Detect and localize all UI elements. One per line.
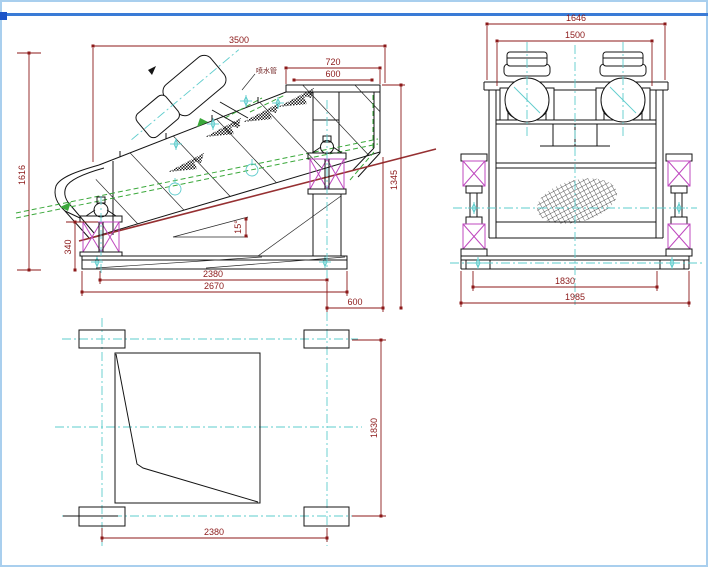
dim-top-width: 720 xyxy=(325,57,340,67)
cad-drawing-canvas: 15° 喷水管 3500 1616 340 720 600 1345 xyxy=(0,0,708,567)
motor-left xyxy=(500,42,554,136)
dim-base-span: 2380 xyxy=(203,269,223,279)
dim-front-height: 340 xyxy=(63,239,73,254)
motor-right xyxy=(596,42,650,136)
spray-pipe-callout: 喷水管 xyxy=(242,66,277,90)
spray-piping xyxy=(16,95,378,218)
dim-plan-length: 2380 xyxy=(204,527,224,537)
dim-base-width: 1985 xyxy=(565,292,585,302)
spray-pipe-label: 喷水管 xyxy=(256,66,277,75)
canvas-frame xyxy=(0,1,708,566)
dim-incline-angle: 15° xyxy=(233,220,243,234)
dim-base-overall: 2670 xyxy=(204,281,224,291)
incline-angle: 15° xyxy=(173,217,248,237)
front-view: 1646 1500 1830 1985 xyxy=(450,13,702,307)
motor-terminal-flag xyxy=(148,66,156,75)
vibration-motor xyxy=(119,34,251,153)
plan-view: 2380 1830 xyxy=(55,312,386,546)
side-view: 15° 喷水管 3500 1616 340 720 600 1345 xyxy=(16,32,465,312)
right-support xyxy=(258,136,346,256)
dim-overall-width: 1646 xyxy=(566,13,586,23)
base-frame xyxy=(82,256,347,269)
plan-view-dimensions: 2380 1830 xyxy=(102,340,386,542)
dim-total-height: 1616 xyxy=(17,165,27,185)
drawing-svg: 15° 喷水管 3500 1616 340 720 600 1345 xyxy=(0,0,708,567)
dim-overall-length: 3500 xyxy=(229,35,249,45)
dim-discharge-offset: 600 xyxy=(347,297,362,307)
dim-foot-span: 1830 xyxy=(555,276,575,286)
dim-plan-width: 1830 xyxy=(369,418,379,438)
plan-body xyxy=(63,330,349,526)
dim-right-height: 1345 xyxy=(389,170,399,190)
dim-top-inner-width: 600 xyxy=(325,69,340,79)
dim-motor-span: 1500 xyxy=(565,30,585,40)
